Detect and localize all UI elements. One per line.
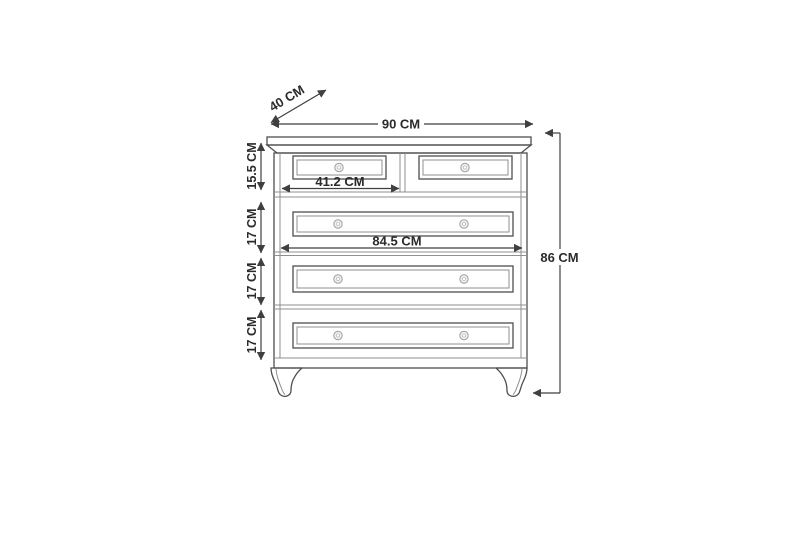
top-row-height-label: 15.5 CM	[245, 142, 259, 189]
dimension-overall-height: 86 CM	[533, 133, 581, 393]
foot-right	[497, 368, 528, 396]
drawer-row-4	[293, 323, 513, 348]
drawer-top-right	[419, 156, 512, 179]
top-drawer-divider	[400, 153, 405, 192]
chest-rails	[274, 192, 527, 358]
dimension-row2-height: 17 CM	[245, 202, 261, 253]
row3-height-label: 17 CM	[245, 263, 259, 300]
row2-height-label: 17 CM	[245, 209, 259, 246]
drawer-knob-center	[463, 166, 466, 169]
chest-top-board	[267, 137, 531, 145]
drawer-knob-center	[462, 334, 465, 337]
drawer-knob-center	[462, 277, 465, 280]
small-drawer-width-label: 41.2 CM	[315, 174, 364, 189]
drawer-knob-center	[336, 277, 339, 280]
dimension-top-row-height: 15.5 CM	[245, 142, 261, 190]
drawer-knob-center	[337, 166, 340, 169]
dimension-row4-height: 17 CM	[245, 310, 261, 360]
diagram-canvas: 90 CM 40 CM 86 CM 15.5 CM 17 CM 17 CM 17…	[0, 0, 800, 533]
row4-height-label: 17 CM	[245, 317, 259, 354]
dimension-overall-depth: 40 CM	[266, 82, 326, 123]
overall-width-label: 90 CM	[382, 117, 420, 132]
furniture-dimension-diagram: 90 CM 40 CM 86 CM 15.5 CM 17 CM 17 CM 17…	[0, 0, 800, 533]
dimension-overall-width: 90 CM	[271, 115, 533, 132]
foot-right-detail	[513, 369, 522, 395]
wide-drawer-width-label: 84.5 CM	[372, 234, 421, 249]
drawer-knob-center	[336, 222, 339, 225]
chest-top-molding	[267, 145, 531, 153]
overall-depth-label: 40 CM	[266, 82, 307, 115]
drawer-knob-center	[336, 334, 339, 337]
overall-height-label: 86 CM	[540, 250, 578, 265]
dimension-small-drawer-width: 41.2 CM	[282, 174, 399, 189]
drawer-row-2	[293, 212, 513, 236]
foot-left	[271, 368, 302, 396]
dimension-row3-height: 17 CM	[245, 258, 261, 305]
chest-of-drawers	[267, 137, 531, 396]
drawer-row-3	[293, 266, 513, 292]
foot-left-detail	[276, 369, 285, 395]
drawer-knob-center	[462, 222, 465, 225]
